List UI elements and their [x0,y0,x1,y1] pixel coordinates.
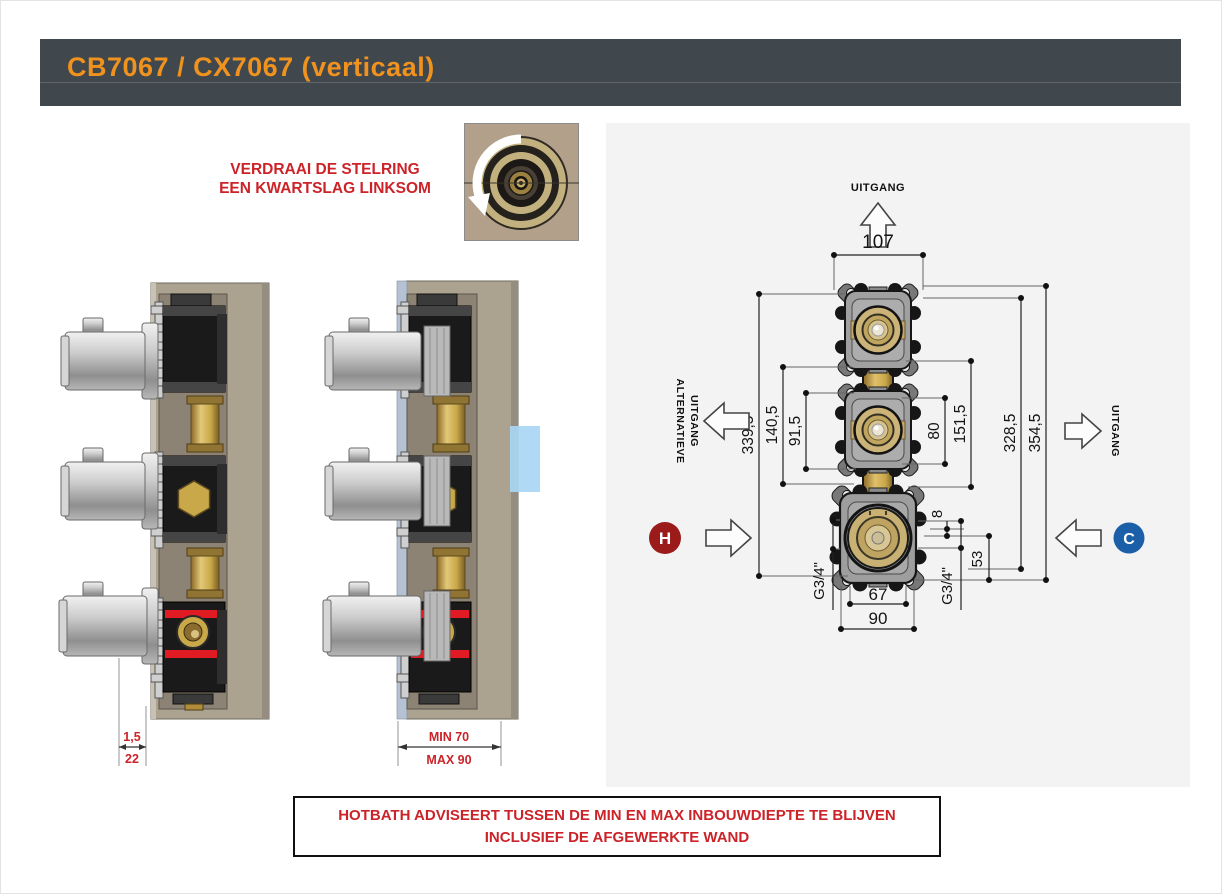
dimension-diagram-panel: UITGANG [606,123,1190,787]
side-view-b-svg: MIN 70 MAX 90 [321,266,581,781]
warning-line2: INCLUSIEF DE AFGEWERKTE WAND [485,827,749,849]
label-outlet-right: UITGANG [1109,405,1121,457]
cold-letter: C [1123,531,1135,548]
handle-bottom [59,582,158,664]
valve-body-middle [163,456,227,542]
dim-354-5: 354,5 [1027,414,1044,453]
valve-body-top [163,294,227,392]
dim-80: 80 [926,422,943,440]
dim-140-5: 140,5 [764,406,781,445]
page-title: CB7067 / CX7067 (verticaal) [67,52,435,83]
handle-middle [61,448,158,529]
dim-67: 67 [869,585,888,604]
warning-line1: HOTBATH ADVISEERT TUSSEN DE MIN EN MAX I… [338,805,896,827]
valve-stack [151,294,227,710]
dim-max-90: MAX 90 [426,753,471,767]
dim-91-5: 91,5 [787,416,804,446]
handles-depth [323,318,450,661]
rotation-ring-image [464,123,579,246]
hot-arrow-icon [706,520,751,556]
dim-90: 90 [869,609,888,628]
handles [59,318,158,664]
dim-53: 53 [969,551,986,568]
dim-328-5: 328,5 [1002,414,1019,453]
dimension-install-depth: MIN 70 MAX 90 [398,721,501,767]
installation-sheet: CB7067 / CX7067 (verticaal) VERDRAAI DE … [0,0,1222,894]
dimension-wall-thickness: 1,5 22 [119,658,146,766]
dim-151-5: 151,5 [952,405,969,444]
hot-badge: H [649,522,681,554]
side-view-installed: 1,5 22 [41,266,341,786]
thread-right-label: G3/4" [939,567,956,605]
instruction-line1: VERDRAAI DE STELRING [194,161,456,180]
valve-module-top [835,282,921,379]
instruction-text: VERDRAAI DE STELRING EEN KWARTSLAG LINKS… [194,161,456,199]
hot-letter: H [659,529,671,548]
handle-top [61,318,158,399]
dim-22: 22 [125,752,139,766]
side-view-depth: MIN 70 MAX 90 [321,266,581,786]
cold-badge: C [1114,523,1145,554]
dim-1-5: 1,5 [123,730,140,744]
side-view-a-svg: 1,5 22 [41,266,341,781]
arrow-right-icon [1065,414,1101,448]
brass-connector [187,396,223,452]
label-alt-outlet-line2: UITGANG [688,395,700,447]
dim-107: 107 [862,232,894,253]
label-alt-outlet-line1: ALTERNATIEVE [674,379,686,464]
instruction-line2: EEN KWARTSLAG LINKSOM [194,180,456,199]
warning-box: HOTBATH ADVISEERT TUSSEN DE MIN EN MAX I… [293,796,941,857]
thread-left-label: G3/4" [811,562,828,600]
ring-svg [464,123,579,241]
front-view-svg: UITGANG [606,123,1190,787]
cold-arrow-icon [1056,520,1101,556]
dim-min-70: MIN 70 [429,730,469,744]
finished-wall-highlight [510,426,540,492]
header-bar: CB7067 / CX7067 (verticaal) [40,39,1181,106]
dim-8: 8 [929,510,946,518]
label-outlet-top: UITGANG [851,182,905,194]
